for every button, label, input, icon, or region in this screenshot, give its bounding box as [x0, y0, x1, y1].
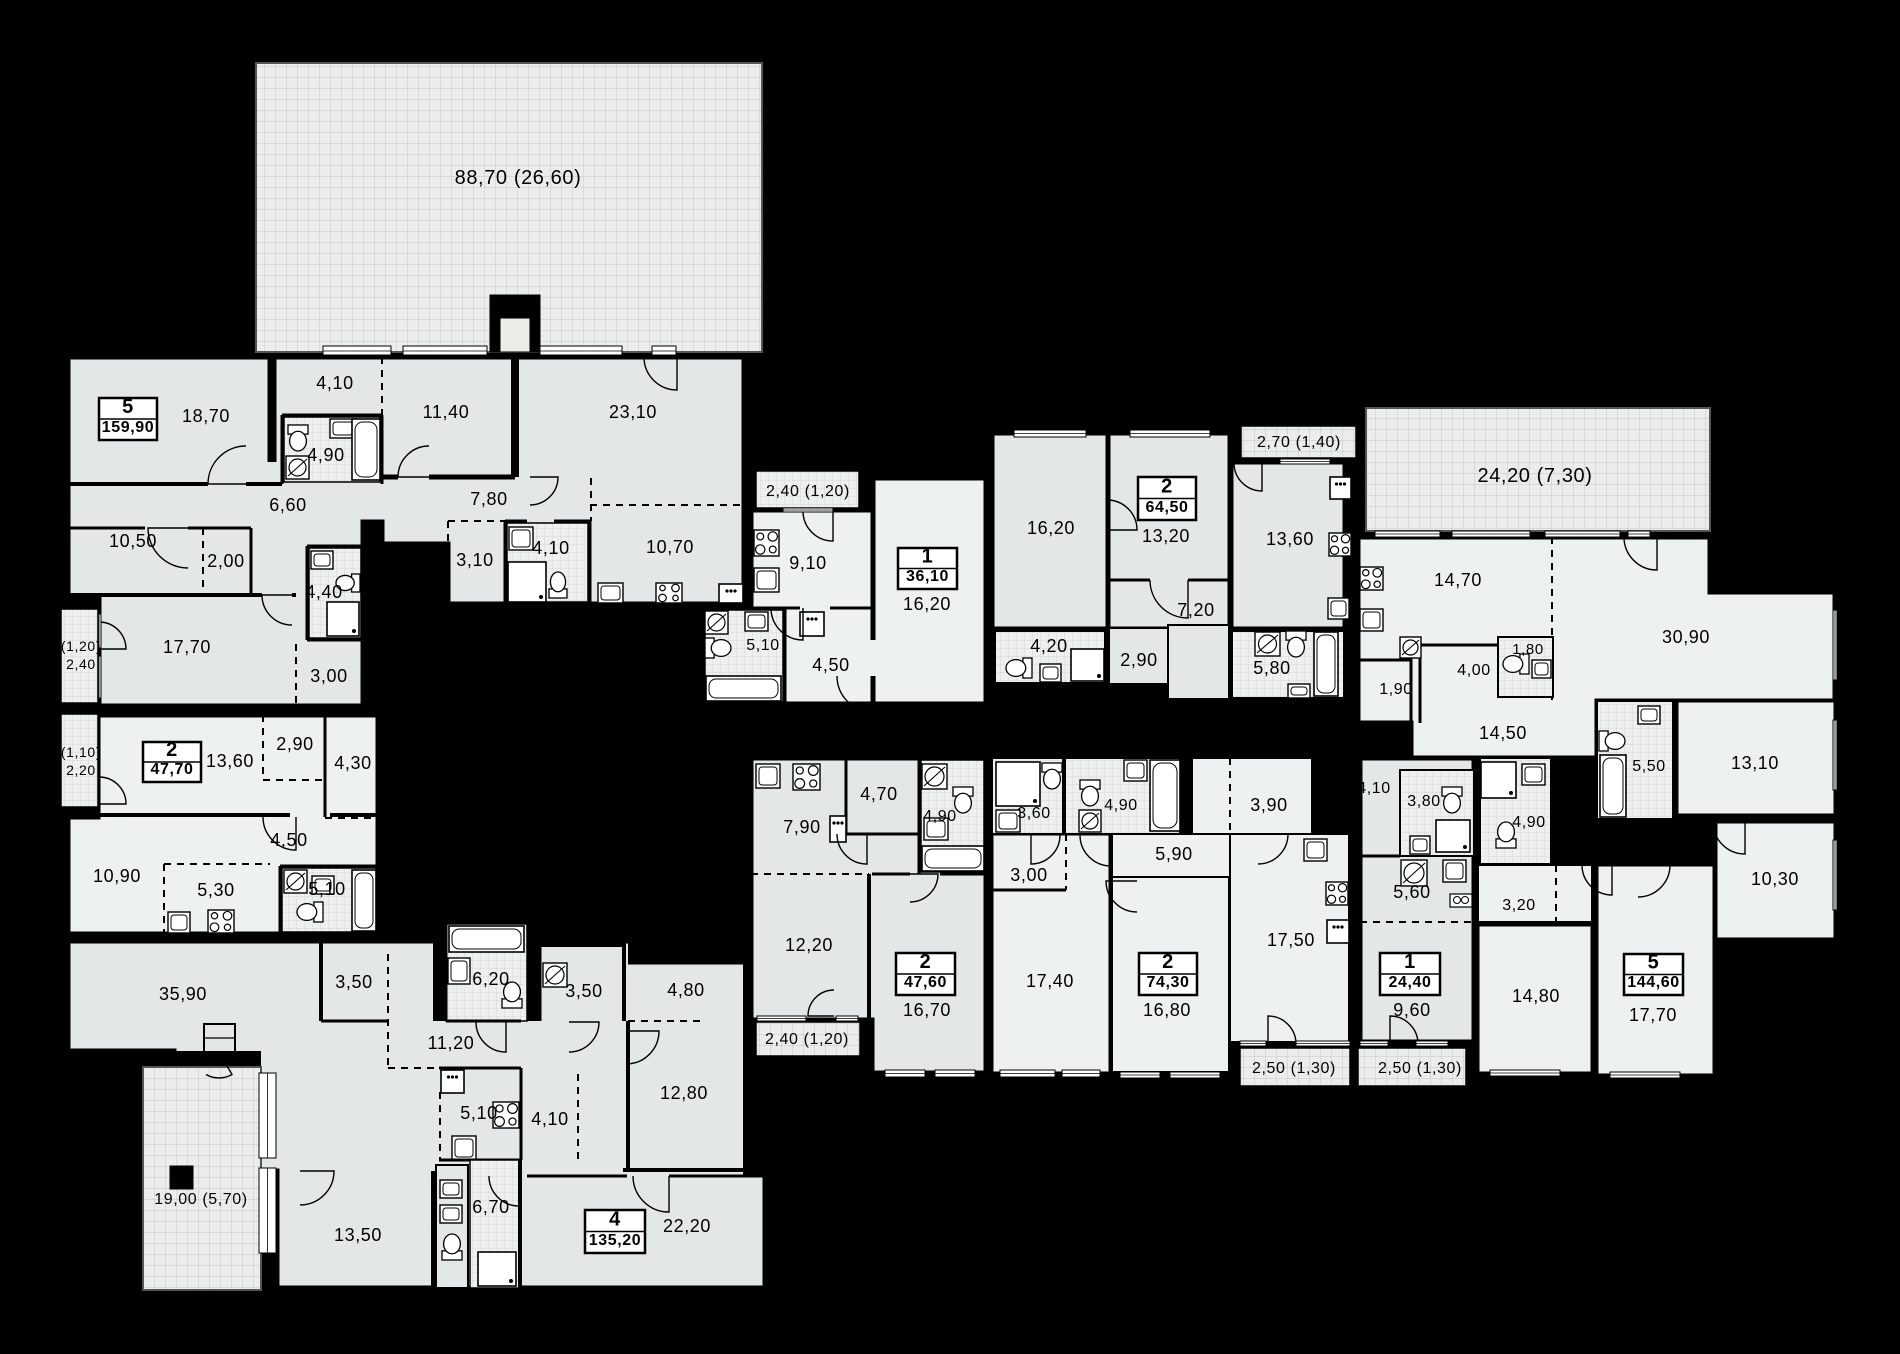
svg-text:18,70: 18,70: [182, 406, 230, 426]
svg-text:2,40 (1,20): 2,40 (1,20): [766, 483, 850, 500]
svg-text:2,50 (1,30): 2,50 (1,30): [1252, 1060, 1336, 1077]
svg-text:4,50: 4,50: [812, 655, 849, 675]
svg-text:2: 2: [1161, 476, 1173, 498]
svg-text:88,70 (26,60): 88,70 (26,60): [455, 167, 582, 189]
svg-text:16,80: 16,80: [1143, 1000, 1191, 1020]
svg-text:4,20: 4,20: [1030, 636, 1067, 656]
svg-text:9,60: 9,60: [1393, 1000, 1430, 1020]
svg-text:11,20: 11,20: [428, 1033, 475, 1053]
svg-text:6,70: 6,70: [472, 1197, 509, 1217]
svg-text:5,80: 5,80: [1253, 658, 1290, 678]
svg-text:16,20: 16,20: [903, 594, 951, 614]
svg-text:4,90: 4,90: [1512, 814, 1546, 831]
svg-text:5,60: 5,60: [1393, 882, 1430, 902]
svg-text:5,10: 5,10: [460, 1103, 497, 1123]
svg-text:17,70: 17,70: [163, 637, 211, 657]
svg-text:3,80: 3,80: [1407, 793, 1441, 810]
svg-text:3,00: 3,00: [310, 666, 347, 686]
svg-text:35,90: 35,90: [159, 984, 207, 1004]
svg-text:4,90: 4,90: [923, 808, 957, 825]
svg-text:1,90: 1,90: [1379, 681, 1413, 698]
svg-text:6,20: 6,20: [472, 969, 509, 989]
svg-text:14,80: 14,80: [1512, 986, 1560, 1006]
svg-text:2: 2: [1162, 951, 1174, 973]
svg-text:24,40: 24,40: [1388, 974, 1431, 991]
svg-text:74,30: 74,30: [1146, 974, 1189, 991]
svg-text:14,70: 14,70: [1434, 570, 1482, 590]
svg-text:23,10: 23,10: [609, 402, 657, 422]
svg-text:1,80: 1,80: [1512, 641, 1544, 658]
svg-text:7,80: 7,80: [470, 489, 507, 509]
svg-text:4,10: 4,10: [531, 1109, 568, 1129]
svg-text:3,50: 3,50: [335, 972, 372, 992]
svg-text:4,10: 4,10: [532, 538, 569, 558]
svg-text:2,20: 2,20: [66, 762, 96, 778]
svg-text:4,90: 4,90: [307, 445, 344, 465]
svg-text:(1,20): (1,20): [61, 638, 101, 654]
svg-text:10,70: 10,70: [646, 537, 694, 557]
svg-text:5,90: 5,90: [1155, 844, 1192, 864]
svg-text:3,90: 3,90: [1250, 795, 1287, 815]
svg-text:4,10: 4,10: [1357, 780, 1391, 797]
svg-text:17,70: 17,70: [1629, 1005, 1677, 1025]
svg-text:2: 2: [920, 951, 932, 973]
svg-text:14,50: 14,50: [1479, 723, 1527, 743]
svg-text:12,80: 12,80: [660, 1083, 708, 1103]
svg-text:17,50: 17,50: [1267, 930, 1315, 950]
svg-text:4,30: 4,30: [334, 753, 371, 773]
svg-text:3,10: 3,10: [456, 550, 493, 570]
svg-text:4,80: 4,80: [667, 980, 704, 1000]
svg-text:(1,10): (1,10): [61, 744, 101, 760]
svg-text:1: 1: [922, 546, 934, 568]
svg-text:19,00 (5,70): 19,00 (5,70): [154, 1191, 247, 1208]
svg-text:10,90: 10,90: [93, 866, 141, 886]
svg-text:2,40 (1,20): 2,40 (1,20): [765, 1031, 849, 1048]
svg-text:47,70: 47,70: [150, 761, 193, 778]
svg-text:2: 2: [166, 739, 178, 761]
svg-text:3,60: 3,60: [1017, 805, 1051, 822]
svg-text:10,30: 10,30: [1751, 869, 1799, 889]
svg-text:5,10: 5,10: [746, 637, 780, 654]
svg-text:13,10: 13,10: [1731, 753, 1779, 773]
svg-text:64,50: 64,50: [1145, 499, 1188, 516]
svg-text:13,20: 13,20: [1142, 526, 1190, 546]
svg-text:7,20: 7,20: [1177, 600, 1214, 620]
svg-text:1: 1: [1404, 951, 1416, 973]
svg-text:2,00: 2,00: [207, 551, 244, 571]
svg-text:2,90: 2,90: [1120, 650, 1157, 670]
svg-text:7,90: 7,90: [783, 817, 820, 837]
svg-text:13,60: 13,60: [206, 751, 254, 771]
svg-text:17,40: 17,40: [1026, 971, 1074, 991]
svg-text:36,10: 36,10: [906, 568, 949, 585]
svg-text:2,90: 2,90: [276, 734, 313, 754]
svg-text:13,50: 13,50: [334, 1225, 382, 1245]
svg-text:159,90: 159,90: [102, 419, 155, 436]
svg-text:22,20: 22,20: [663, 1216, 711, 1236]
svg-text:2,40: 2,40: [66, 656, 96, 672]
svg-text:5,10: 5,10: [308, 879, 345, 899]
svg-text:30,90: 30,90: [1662, 627, 1710, 647]
svg-text:3,20: 3,20: [1502, 897, 1536, 914]
svg-text:47,60: 47,60: [904, 974, 947, 991]
svg-text:11,40: 11,40: [423, 402, 470, 422]
svg-text:5,30: 5,30: [197, 880, 234, 900]
svg-text:3,00: 3,00: [1010, 865, 1047, 885]
svg-text:4,70: 4,70: [860, 784, 897, 804]
svg-text:2,70 (1,40): 2,70 (1,40): [1257, 434, 1341, 451]
svg-text:135,20: 135,20: [589, 1232, 642, 1249]
svg-text:6,60: 6,60: [269, 495, 306, 515]
svg-text:5,50: 5,50: [1632, 758, 1666, 775]
svg-text:2,50 (1,30): 2,50 (1,30): [1378, 1060, 1462, 1077]
svg-text:5: 5: [122, 396, 134, 418]
svg-text:16,70: 16,70: [903, 1000, 951, 1020]
svg-text:16,20: 16,20: [1027, 518, 1075, 538]
svg-text:10,50: 10,50: [109, 531, 157, 551]
svg-text:13,60: 13,60: [1266, 529, 1314, 549]
svg-text:3,50: 3,50: [565, 981, 602, 1001]
svg-text:4,10: 4,10: [316, 373, 353, 393]
svg-text:5: 5: [1648, 952, 1660, 974]
svg-text:12,20: 12,20: [785, 935, 833, 955]
svg-text:144,60: 144,60: [1627, 974, 1680, 991]
svg-text:24,20 (7,30): 24,20 (7,30): [1477, 465, 1592, 487]
svg-text:4,40: 4,40: [305, 582, 342, 602]
svg-text:4: 4: [609, 1209, 621, 1231]
svg-text:4,00: 4,00: [1457, 662, 1491, 679]
svg-text:4,50: 4,50: [270, 830, 307, 850]
svg-text:4,90: 4,90: [1104, 797, 1138, 814]
svg-text:9,10: 9,10: [789, 553, 826, 573]
